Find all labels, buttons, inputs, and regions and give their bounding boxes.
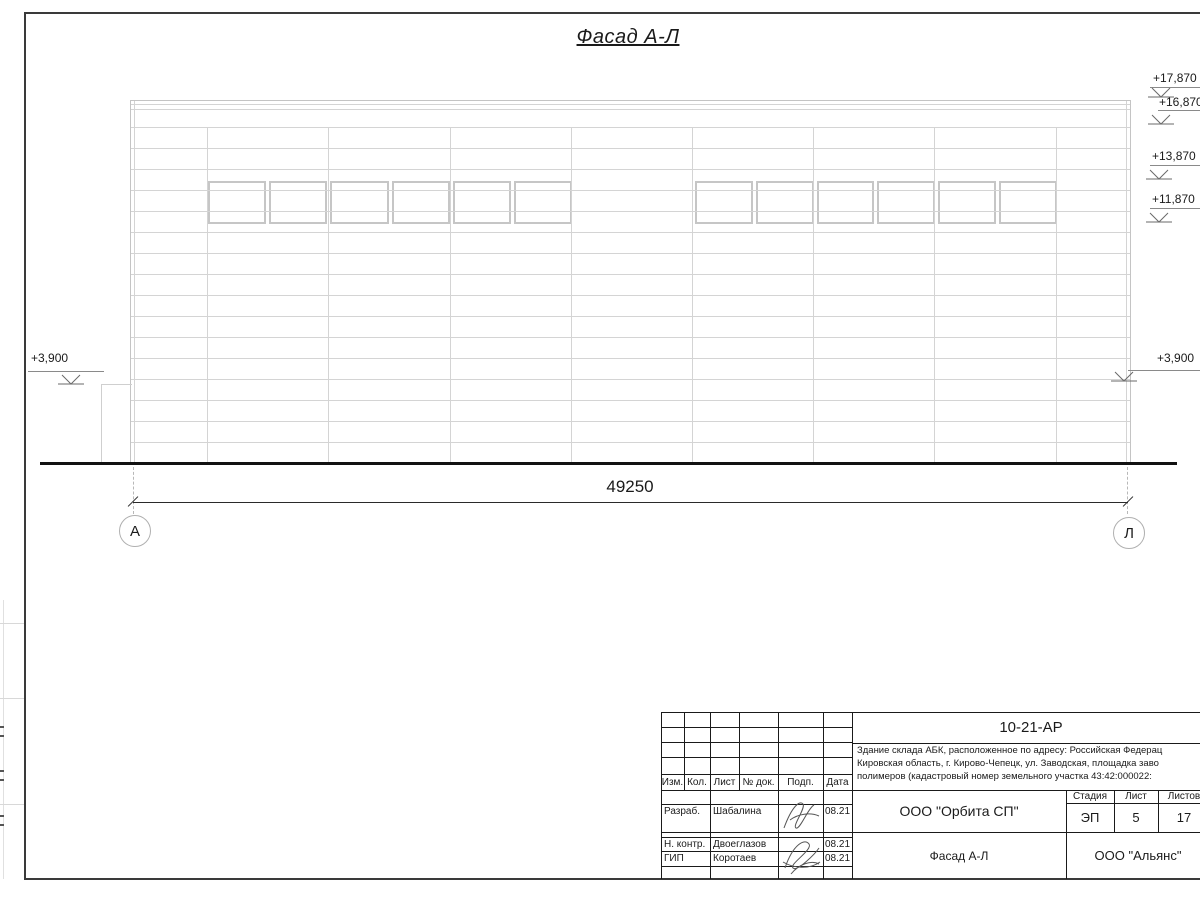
siding-line	[131, 127, 1130, 128]
loading-dock	[101, 384, 132, 464]
stamp-line	[710, 712, 711, 879]
extension-line-a	[133, 467, 134, 514]
rev-col-doc: № док.	[739, 774, 778, 790]
signoff-name: Коротаев	[713, 853, 756, 864]
window	[269, 181, 327, 224]
organization-name: ООО "Орбита СП"	[852, 790, 1066, 832]
signoff-date: 08.21	[823, 837, 852, 851]
window	[330, 181, 388, 224]
elevation-shelf	[28, 371, 104, 372]
object-description-line: Кировская область, г. Кирово-Чепецк, ул.…	[857, 758, 1159, 769]
window	[938, 181, 996, 224]
contractor-name: ООО "Альянс"	[1066, 832, 1200, 879]
object-description-line: Здание склада АБК, расположенное по адре…	[857, 745, 1162, 756]
margin-column-line	[3, 600, 4, 879]
elevation-shelf	[1150, 208, 1200, 209]
siding-line	[131, 358, 1130, 359]
sheet-header: Лист	[1114, 790, 1158, 803]
rev-col-list: Лист	[710, 774, 739, 790]
siding-line	[131, 316, 1130, 317]
elevation-shelf	[1128, 370, 1200, 371]
frame-top-line	[24, 12, 1200, 14]
parapet-line	[131, 109, 1130, 110]
elevation-label: +3,900	[1157, 351, 1194, 365]
panel-joint	[571, 127, 572, 462]
dimension-label: 49250	[530, 477, 730, 497]
margin-text-stub	[0, 726, 4, 737]
panel-joint	[328, 127, 329, 462]
parapet-line	[131, 104, 1130, 105]
dimension-line	[133, 502, 1128, 503]
frame-left-line	[24, 12, 26, 880]
window	[877, 181, 935, 224]
siding-line	[131, 211, 1130, 212]
siding-line	[131, 253, 1130, 254]
sheet-title: Фасад А-Л	[852, 832, 1066, 879]
window	[695, 181, 753, 224]
window	[453, 181, 511, 224]
stage-value: ЭП	[1066, 803, 1114, 832]
signature-icon	[780, 798, 822, 832]
rev-col-podp: Подп.	[778, 774, 823, 790]
stamp-line	[661, 712, 662, 879]
axis-label-l: Л	[1124, 525, 1134, 542]
panel-joint	[207, 127, 208, 462]
elevation-label: +17,870	[1153, 71, 1197, 85]
panel-joint	[450, 127, 451, 462]
signoff-role: Разраб.	[664, 806, 700, 817]
margin-divider	[0, 804, 24, 805]
siding-line	[131, 379, 1130, 380]
stamp-line	[661, 742, 852, 743]
stamp-line	[852, 743, 1200, 744]
axis-label-a: А	[130, 523, 140, 540]
elevation-arrow-icon	[1146, 212, 1172, 223]
window-band-right	[695, 181, 1057, 224]
siding-line	[131, 400, 1130, 401]
extension-line-l	[1127, 467, 1128, 514]
sheets-header: Листов	[1158, 790, 1200, 803]
stamp-line	[661, 757, 852, 758]
elevation-label: +16,870	[1159, 95, 1200, 109]
elevation-label: +13,870	[1152, 149, 1196, 163]
siding-line	[131, 337, 1130, 338]
elevation-arrow-icon	[1148, 114, 1174, 125]
elevation-label: +11,870	[1152, 192, 1195, 206]
panel-joint	[813, 127, 814, 462]
signoff-name: Двоеглазов	[713, 839, 766, 850]
signoff-name: Шабалина	[713, 806, 761, 817]
margin-divider	[0, 698, 24, 699]
window	[208, 181, 266, 224]
elevation-arrow-icon	[58, 374, 84, 385]
window	[999, 181, 1057, 224]
panel-joint	[692, 127, 693, 462]
wall-edge-line	[134, 101, 135, 462]
rev-col-data: Дата	[823, 774, 852, 790]
stamp-line	[661, 866, 852, 867]
elevation-arrow-icon	[1111, 371, 1137, 382]
signoff-date: 08.21	[823, 804, 852, 818]
axis-bubble-l: Л	[1113, 517, 1145, 549]
ground-line	[40, 462, 1177, 465]
siding-line	[131, 169, 1130, 170]
rev-col-kol: Кол.	[684, 774, 710, 790]
stage-header: Стадия	[1066, 790, 1114, 803]
siding-line	[131, 232, 1130, 233]
doc-number: 10-21-АР	[852, 712, 1200, 743]
siding-line	[131, 148, 1130, 149]
window-band-left	[208, 181, 572, 224]
sheet-number: 5	[1114, 803, 1158, 832]
margin-divider	[0, 623, 24, 624]
object-description-line: полимеров (кадастровый номер земельного …	[857, 771, 1152, 782]
stamp-line	[661, 727, 852, 728]
siding-line	[131, 295, 1130, 296]
signoff-role: Н. контр.	[664, 839, 705, 850]
elevation-label: +3,900	[31, 351, 68, 365]
elevation-shelf	[1158, 110, 1200, 111]
window	[514, 181, 572, 224]
drawing-title: Фасад А-Л	[478, 24, 778, 50]
signature-icon	[779, 834, 823, 876]
wall-edge-line	[1126, 101, 1127, 462]
siding-line	[131, 421, 1130, 422]
sheets-total: 17	[1158, 803, 1200, 832]
elevation-shelf	[1150, 165, 1200, 166]
panel-joint	[1056, 127, 1057, 462]
facade-wall	[130, 100, 1131, 463]
panel-joint	[934, 127, 935, 462]
signoff-role: ГИП	[664, 853, 684, 864]
siding-line	[131, 442, 1130, 443]
drawing-sheet: Фасад А-Л 49250 А Л +17,870 +16,870 +13,…	[0, 0, 1200, 900]
elevation-arrow-icon	[1146, 169, 1172, 180]
margin-text-stub	[0, 770, 4, 781]
window	[756, 181, 814, 224]
margin-text-stub	[0, 815, 4, 826]
rev-col-izm: Изм.	[661, 774, 684, 790]
signoff-date: 08.21	[823, 851, 852, 865]
siding-line	[131, 274, 1130, 275]
window	[817, 181, 875, 224]
siding-line	[131, 190, 1130, 191]
window	[392, 181, 450, 224]
axis-bubble-a: А	[119, 515, 151, 547]
